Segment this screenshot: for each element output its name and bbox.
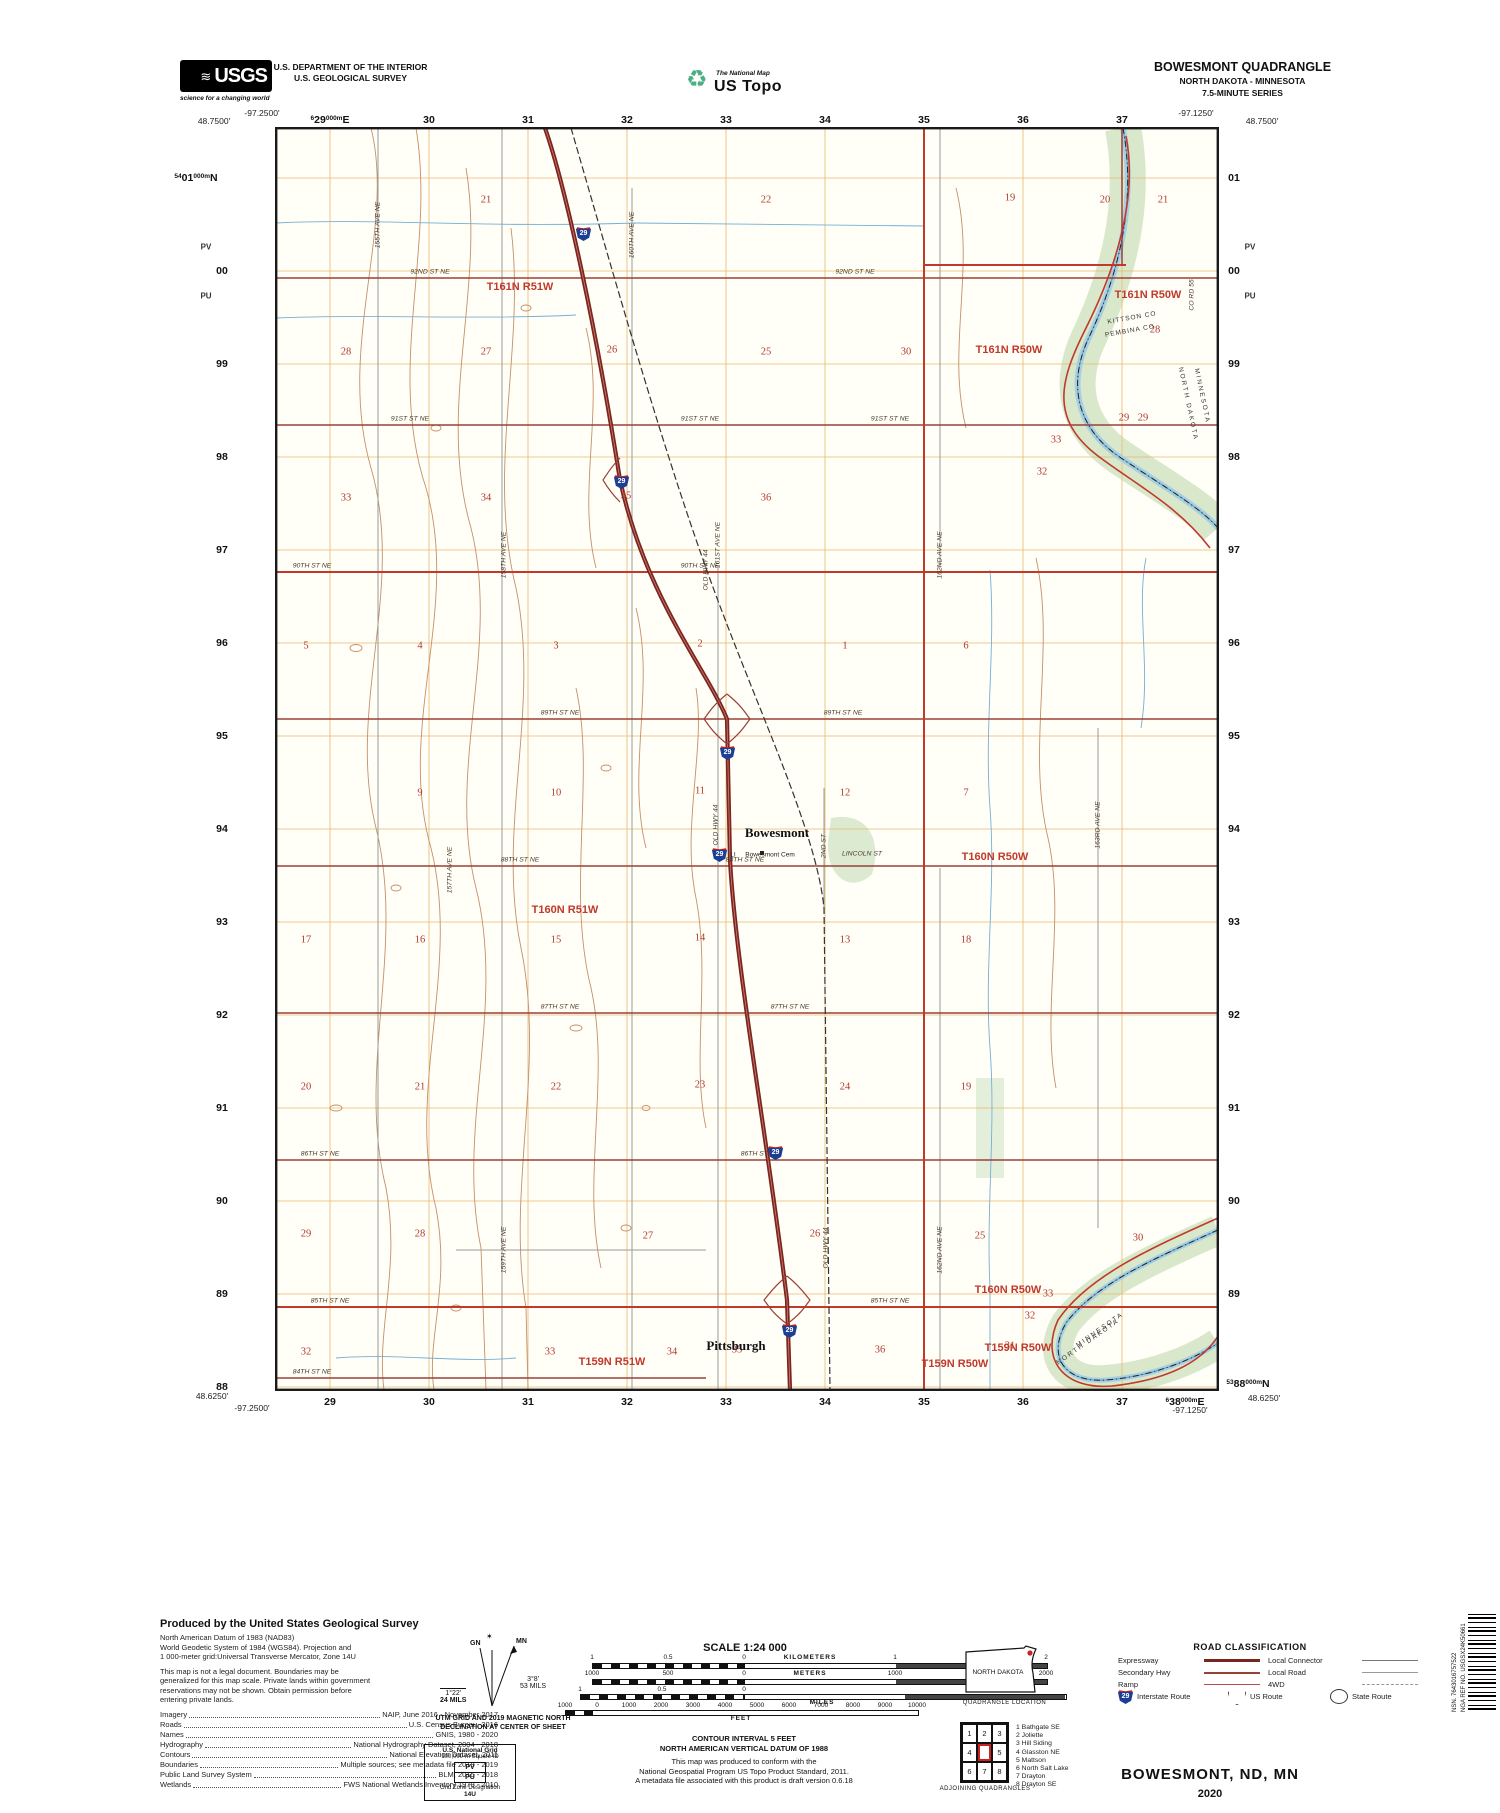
us-route-label: US Route [1250,1692,1283,1701]
contour-note-1: CONTOUR INTERVAL 5 FEET [660,1734,828,1744]
adjoining-cell: 3 [992,1724,1007,1743]
usgs-wave-icon: ≋ [200,70,211,83]
utm-easting-bottom: 31 [522,1396,534,1408]
declination-caption-2: DECLINATION AT CENTER OF SHEET [408,1723,598,1732]
utm-northing-left: 94 [216,823,228,835]
usgs-tagline: science for a changing world [180,95,270,102]
utm-northing-left: 89 [216,1288,228,1300]
utm-easting-top: 37 [1116,114,1128,126]
streams [276,222,1146,1390]
quad-states: NORTH DAKOTA - MINNESOTA [1130,76,1355,86]
utm-northing-right: 00 [1228,265,1240,277]
utm-northing-left: 00 [216,265,228,277]
grid-square-pv-right: PV [1245,243,1256,252]
state-outline-label: NORTH DAKOTA [972,1669,1024,1676]
adjoining-quad-name: 1 Bathgate SE [1016,1724,1069,1732]
map-area [276,128,1218,1390]
utm-easting-bottom: 29 [324,1396,336,1408]
scale-tick-label: 0 [742,1670,746,1677]
quadrangle-location-caption: QUADRANGLE LOCATION [952,1700,1057,1706]
scale-tick-label: 4000 [718,1702,732,1709]
product-standard-note: This map was produced to conform with th… [635,1757,853,1786]
scale-tick-label: 6000 [782,1702,796,1709]
state-route-legend: State Route [1330,1689,1392,1704]
adjoining-quad-name: 5 Mattson [1016,1757,1069,1765]
corner-coordinate: 48.7500' [198,116,230,126]
scale-tick-label: 2000 [654,1702,668,1709]
usgs-topo-sheet: ≋ USGS science for a changing world U.S.… [0,0,1500,1813]
utm-northing-right: 98 [1228,451,1240,463]
utm-northing-left: 88 [216,1381,228,1393]
scale-title: SCALE 1:24 000 [590,1642,900,1654]
utm-northing-last: 5388000mN [1226,1378,1269,1390]
scale-tick-label: 10000 [908,1702,926,1709]
utm-northing-left: 90 [216,1195,228,1207]
contour-interval-note: CONTOUR INTERVAL 5 FEET NORTH AMERICAN V… [660,1734,828,1753]
road-class-row: Secondary HwyLocal Road [1118,1668,1448,1677]
utm-northing-right: 97 [1228,544,1240,556]
mn-degrees: 3°8' [520,1676,546,1683]
utm-easting-top: 34 [819,114,831,126]
river-green-top [1078,128,1218,528]
department-heading: U.S. DEPARTMENT OF THE INTERIOR U.S. GEO… [268,62,433,84]
usng-title: U.S. National Grid [428,1747,512,1754]
scale-tick-label: 0.5 [663,1654,672,1661]
corner-coordinate: 48.7500' [1246,116,1278,126]
corner-coordinate: -97.1250' [1178,108,1213,118]
interstate-route-label: Interstate Route [1137,1692,1190,1701]
utm-northing-left: 99 [216,358,228,370]
usng-square-pu: PU [455,1772,485,1782]
corner-coordinate: -97.2500' [234,1403,269,1413]
scale-unit-label: FEET [731,1715,752,1722]
interstate-route-legend: 29 Interstate Route [1118,1688,1190,1704]
adjoining-cell: 7 [977,1762,992,1781]
us-topo-logo-text: US Topo [714,78,782,96]
green-strip-drain [976,1078,1004,1178]
scale-tick-label: 0 [742,1686,746,1693]
corner-coordinate: -97.1250' [1172,1405,1207,1415]
utm-easting-top: 36 [1017,114,1029,126]
us-route-shield-icon [1228,1688,1246,1705]
usgs-logo-text: USGS [214,65,267,88]
scale-tick-label: 3000 [686,1702,700,1709]
corner-coordinate: 48.6250' [196,1391,228,1401]
scale-tick-label: 0.5 [657,1686,666,1693]
adjoining-quad-name: 3 Hill Siding [1016,1740,1069,1748]
adjoining-cell: 1 [962,1724,977,1743]
utm-northing-right: 93 [1228,916,1240,928]
us-route-legend: US Route [1228,1688,1283,1705]
magnetic-north-label: MN [516,1638,527,1645]
scale-tick-label: 7000 [814,1702,828,1709]
gn-degrees: 1°22' [440,1690,466,1697]
adjoining-cell: 4 [962,1743,977,1762]
scale-tick-label: 5000 [750,1702,764,1709]
utm-northing-right: 90 [1228,1195,1240,1207]
utm-northing-left: 93 [216,916,228,928]
utm-northing-right: 99 [1228,358,1240,370]
sheet-year: 2020 [1060,1788,1360,1800]
utm-northing-right: 92 [1228,1009,1240,1021]
scale-tick-label: 500 [663,1670,674,1677]
utm-northing-right: 94 [1228,823,1240,835]
neatline [277,129,1218,1390]
dept-line2: U.S. GEOLOGICAL SURVEY [268,73,433,84]
adjoining-cell: 6 [962,1762,977,1781]
cemetery-marker [760,851,764,855]
scale-tick-label: 0 [742,1654,746,1661]
scale-tick-label: 1000 [888,1670,902,1677]
nga-ref-number: NGA REF NO. USGSX24K50661 [1461,1623,1467,1712]
utm-northing-right: 91 [1228,1102,1240,1114]
usng-square-ids: PV PU [454,1762,486,1783]
grid-square-pu-left: PU [200,292,211,301]
scale-unit-label: METERS [793,1670,826,1677]
usng-subtitle: 100,000-m Square ID [428,1754,512,1760]
scale-tick-label: 9000 [878,1702,892,1709]
utm-easting-bottom: 32 [621,1396,633,1408]
contour-note-2: NORTH AMERICAN VERTICAL DATUM OF 1988 [660,1744,828,1754]
scale-tick-label: 1000 [585,1670,599,1677]
grid-square-pu-right: PU [1244,292,1255,301]
corner-coordinate: -97.2500' [244,108,279,118]
utm-easting-top: 35 [918,114,930,126]
grid-square-pv-left: PV [201,243,212,252]
scale-tick-label: 8000 [846,1702,860,1709]
usng-box: U.S. National Grid 100,000-m Square ID P… [424,1744,516,1801]
utm-easting-top: 30 [423,114,435,126]
utm-northing-left: 95 [216,730,228,742]
standard-note-2: National Geospatial Program US Topo Prod… [635,1767,853,1777]
adjoining-quad-name: 4 Glasston NE [1016,1749,1069,1757]
national-map-label: The National Map [716,70,770,77]
standard-note-1: This map was produced to conform with th… [635,1757,853,1767]
credits-title: Produced by the United States Geological… [160,1618,498,1630]
grid-north-label: GN [470,1640,481,1647]
map-graphics [276,128,1218,1390]
quad-name: BOWESMONT QUADRANGLE [1130,60,1355,74]
utm-easting-bottom: 34 [819,1396,831,1408]
road-class-row: ExpresswayLocal Connector [1118,1656,1448,1665]
utm-northing-left: 91 [216,1102,228,1114]
quad-location-dot [1027,1650,1032,1655]
scale-tick-label: 1 [578,1686,582,1693]
sheet-title: BOWESMONT, ND, MN [1060,1766,1360,1783]
interstate-shield-icon: 29 [1118,1688,1133,1704]
nsn-number: NSN. 7643016757522 [1452,1653,1458,1712]
utm-northing-right: 95 [1228,730,1240,742]
usng-square-pv: PV [455,1763,485,1772]
scale-tick-label: 1 [893,1654,897,1661]
adjoining-cell: 8 [992,1762,1007,1781]
adjoining-cell-current [977,1743,992,1762]
utm-northing-first: 5401000mN [174,172,217,184]
barcode [1468,1614,1496,1710]
scale-tick-label: 1000 [622,1702,636,1709]
utm-northing-left: 98 [216,451,228,463]
utm-northing-right: 89 [1228,1288,1240,1300]
adjoining-cell: 2 [977,1724,992,1743]
adjoining-cell: 5 [992,1743,1007,1762]
utm-northing-left: 96 [216,637,228,649]
quad-series: 7.5-MINUTE SERIES [1130,88,1355,98]
quadrangle-title-block: BOWESMONT QUADRANGLE NORTH DAKOTA - MINN… [1130,60,1355,98]
gn-declination-value: 1°22' 24 MILS [440,1688,466,1704]
scale-tick-label: 1 [590,1654,594,1661]
utm-northing-right: 01 [1228,172,1240,184]
utm-northing-right: 96 [1228,637,1240,649]
utm-easting-top: 33 [720,114,732,126]
state-route-shield-icon [1330,1689,1348,1704]
utm-northing-left: 97 [216,544,228,556]
utm-easting-bottom: 35 [918,1396,930,1408]
mn-declination-value: 3°8' 53 MILS [520,1676,546,1690]
adjoining-quad-name: 2 Joliette [1016,1732,1069,1740]
utm-easting-first: 629000mE [311,114,350,126]
utm-easting-top: 32 [621,114,633,126]
true-north-star: ✶ [486,1632,493,1641]
utm-easting-top: 31 [522,114,534,126]
usgs-logo: ≋ USGS [180,60,272,92]
scale-tick-label: 0 [595,1702,599,1709]
state-outline-map: NORTH DAKOTA [962,1644,1046,1696]
interchange-ramps [603,458,810,1324]
utm-easting-last: 638000mE [1166,1396,1205,1408]
utm-easting-bottom: 30 [423,1396,435,1408]
dept-line1: U.S. DEPARTMENT OF THE INTERIOR [268,62,433,73]
streets [276,128,1218,1378]
scale-tick-label: 1000 [558,1702,572,1709]
standard-note-3: A metadata file associated with this pro… [635,1776,853,1786]
declination-caption: UTM GRID AND 2019 MAGNETIC NORTH DECLINA… [408,1714,598,1732]
usng-gzd-value: 14U [428,1791,512,1798]
utm-easting-bottom: 37 [1116,1396,1128,1408]
state-route-label: State Route [1352,1692,1392,1701]
utm-grid [276,128,1218,1390]
mn-mils: 53 MILS [520,1683,546,1690]
scale-unit-label: KILOMETERS [784,1654,837,1661]
road-classification-title: ROAD CLASSIFICATION [1140,1642,1360,1652]
gn-mils: 24 MILS [440,1697,466,1704]
utm-northing-left: 92 [216,1009,228,1021]
utm-easting-bottom: 33 [720,1396,732,1408]
utm-easting-bottom: 36 [1017,1396,1029,1408]
green-patch-bowesmont [828,817,875,883]
adjoining-grid: 12345678 [960,1722,1009,1783]
national-map-icon: ♻ [686,68,708,92]
corner-coordinate: 48.6250' [1248,1393,1280,1403]
